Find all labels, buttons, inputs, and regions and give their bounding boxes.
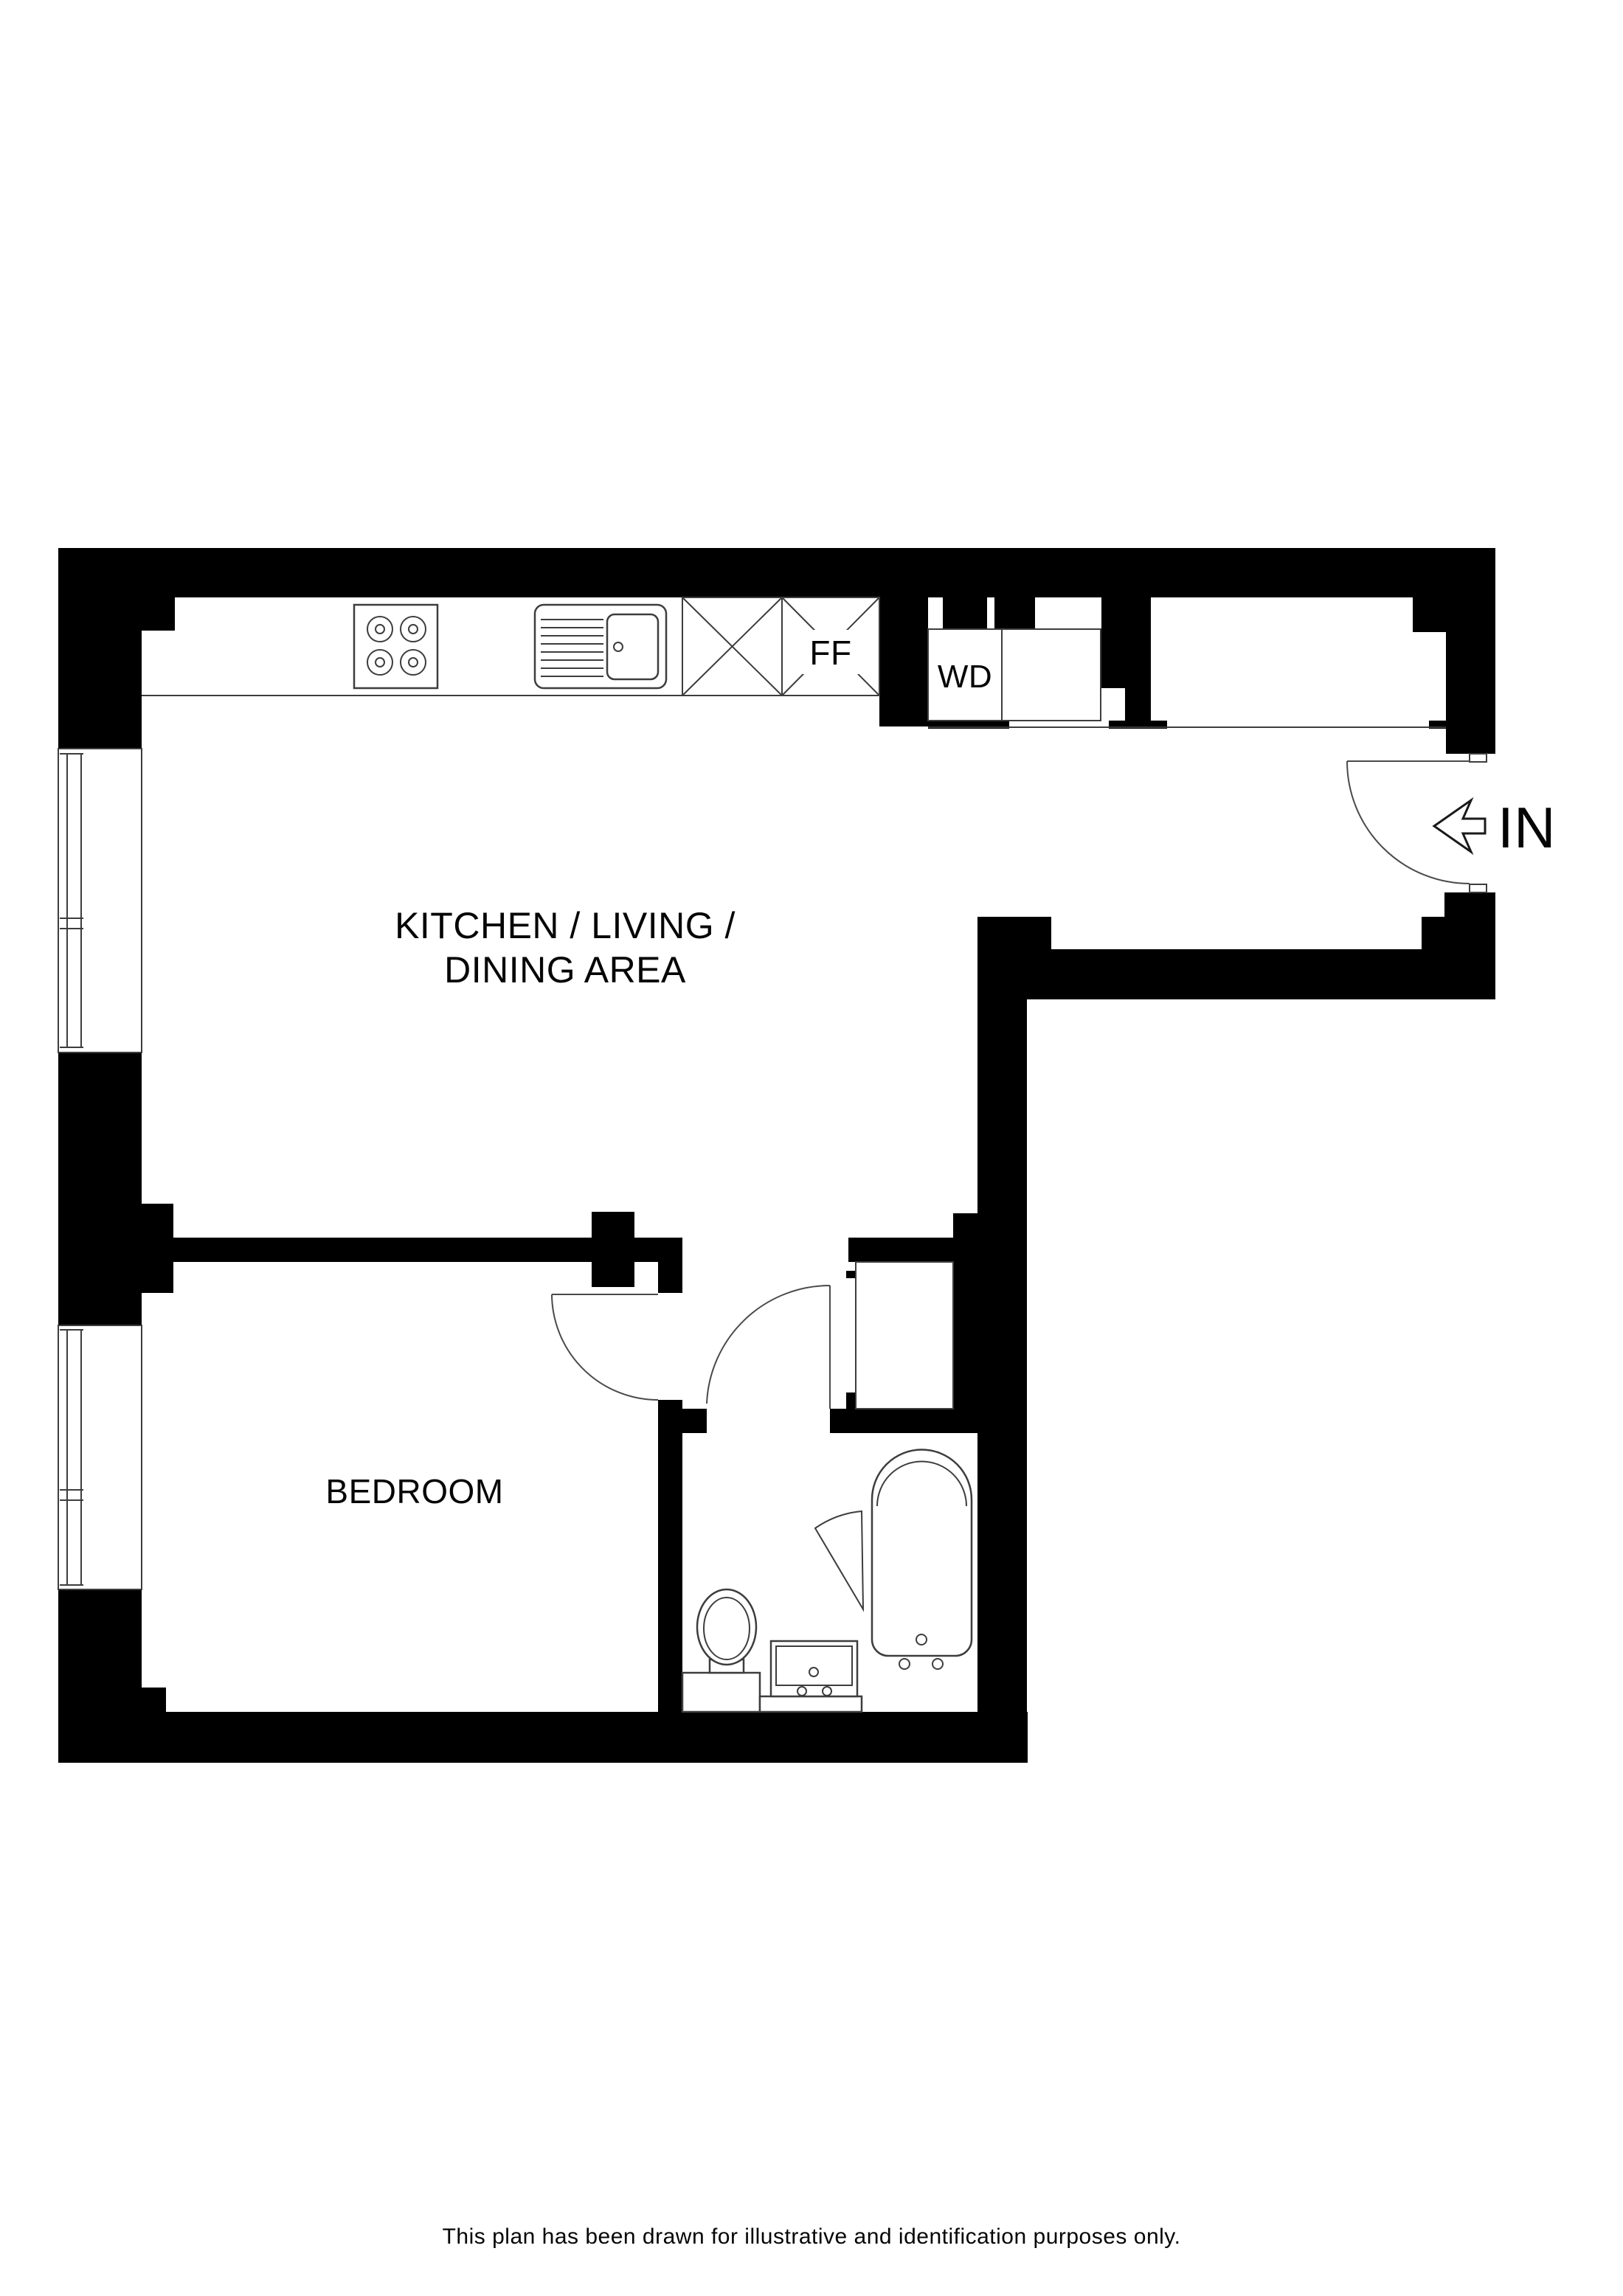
kitchen-unit-icon — [682, 597, 782, 696]
walls — [58, 548, 1495, 1763]
bedroom-door-arc — [552, 1294, 658, 1400]
disclaimer-text: This plan has been drawn for illustrativ… — [443, 2224, 1181, 2249]
room-label-line2: DINING AREA — [444, 949, 686, 991]
wd-closet: WD — [928, 629, 1002, 721]
kitchen-living-dining-label: KITCHEN / LIVING / DINING AREA — [395, 905, 736, 991]
wall-bottom — [58, 1712, 1028, 1763]
sink-icon — [535, 605, 666, 688]
wall-top — [58, 548, 1495, 597]
hall-closet — [1002, 629, 1101, 721]
entrance-arrow-icon — [1434, 800, 1485, 852]
wall-left — [58, 1052, 142, 1325]
bedroom-window — [58, 1325, 142, 1589]
wall-bathroom — [682, 1409, 707, 1433]
bedroom-label: BEDROOM — [325, 1472, 503, 1511]
bathroom-door-arc — [707, 1286, 830, 1404]
floor-plan: FF WD — [0, 0, 1623, 2296]
toilet-icon — [682, 1589, 760, 1712]
shower-screen — [815, 1511, 863, 1609]
storage-alcove — [856, 1262, 953, 1409]
room-label-line1: KITCHEN / LIVING / — [395, 905, 736, 946]
wd-label: WD — [938, 659, 992, 695]
bathroom-door — [707, 1286, 830, 1409]
fridge-freezer-unit: FF — [782, 597, 879, 696]
hob-icon — [354, 605, 437, 688]
living-room-window — [58, 749, 142, 1052]
bedroom-door — [552, 1294, 658, 1400]
basin-vanity-icon — [760, 1641, 862, 1712]
bathtub-icon — [872, 1450, 972, 1670]
ff-label: FF — [809, 634, 851, 672]
floor-plan-page: FF WD — [0, 0, 1623, 2296]
entrance-in-label: IN — [1498, 795, 1556, 860]
wall-hall — [1027, 949, 1495, 999]
